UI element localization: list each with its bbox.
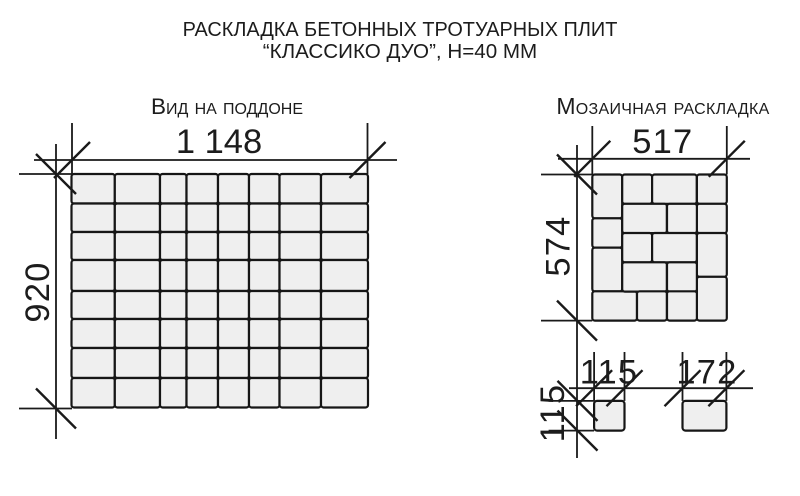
svg-text:920: 920 (19, 261, 57, 322)
svg-text:Вид на поддоне: Вид на поддоне (151, 94, 303, 119)
svg-text:“КЛАССИКО ДУО”, Н=40 ММ: “КЛАССИКО ДУО”, Н=40 ММ (263, 40, 537, 63)
svg-text:РАСКЛАДКА БЕТОННЫХ ТРОТУАРНЫХ: РАСКЛАДКА БЕТОННЫХ ТРОТУАРНЫХ ПЛИТ (183, 19, 618, 41)
svg-text:574: 574 (540, 215, 578, 276)
svg-text:1 148: 1 148 (176, 123, 262, 161)
svg-text:Мозаичная раскладка: Мозаичная раскладка (556, 93, 769, 119)
svg-text:517: 517 (632, 123, 693, 161)
svg-text:115: 115 (534, 384, 572, 443)
svg-text:172: 172 (676, 354, 737, 392)
svg-text:115: 115 (580, 354, 639, 392)
